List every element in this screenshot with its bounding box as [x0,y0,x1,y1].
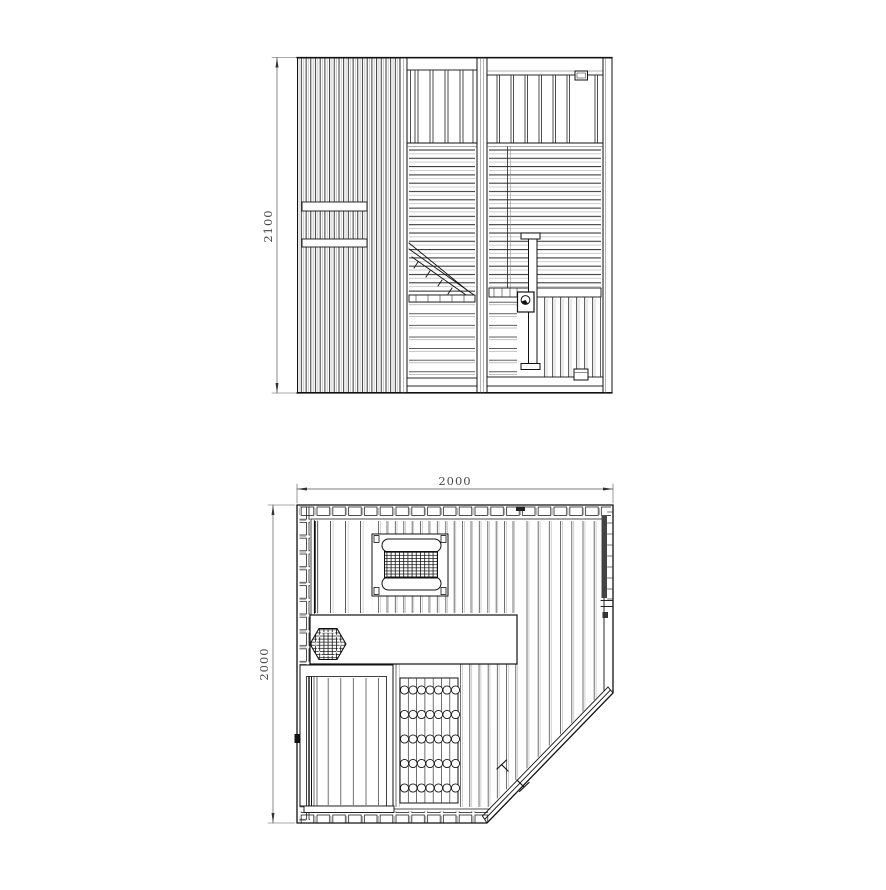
elevation-center-post [477,58,487,393]
control-knob-icon [518,292,535,312]
front-elevation-view: 2100 [261,58,612,394]
door-hinge-block [575,71,588,80]
door-top-marker [516,507,525,512]
elevation-height-label: 2100 [261,209,275,242]
elevation-glass-door [487,58,603,393]
dimension-arrow-left-icon [297,488,307,491]
dimension-arrow-down-icon [276,383,279,393]
bench-lower-slats [489,297,517,377]
wall-horizontal-batten [302,239,367,247]
plan-bottom-wall-planks [300,812,489,823]
sauna-heater [372,534,448,596]
backrest-vertical-slats [540,297,601,377]
elevation-glass-panel [407,58,477,393]
bench-front-rail [409,295,475,302]
dimension-arrow-up-icon [272,505,275,515]
plan-view: 2000 2000 [257,474,613,823]
plan-top-wall-planks [299,507,611,518]
perforated-duckboard [400,678,460,803]
elevation-right-frame [603,58,612,393]
wall-horizontal-batten [302,202,367,211]
dimension-plan-width: 2000 [297,474,613,503]
sauna-technical-drawing: 2100 [0,0,886,886]
dimension-arrow-right-icon [603,488,613,491]
bench-top-edge [489,288,601,297]
drawing-sheet: 2100 [0,0,886,886]
heater-stone-grill [385,552,438,579]
elevation-left-wall-panel [298,58,401,393]
base-plinth [407,378,477,386]
heater-base-block [574,369,588,380]
dimension-plan-depth: 2000 [257,505,295,823]
heater-rail-bottom [382,577,441,590]
dimension-arrow-down-icon [272,813,275,823]
interior-slats-through-door [489,147,601,288]
lower-left-bench [300,665,394,813]
plan-depth-label: 2000 [257,647,271,680]
bench-step [304,806,394,813]
elevation-frame-post [400,58,407,393]
plan-width-label: 2000 [438,474,471,488]
ceiling-boards-left [313,521,372,613]
dimension-arrow-up-icon [276,58,279,68]
heater-rail-top [382,539,441,552]
upper-bench [310,615,517,664]
bench-lower-slats [409,302,475,378]
